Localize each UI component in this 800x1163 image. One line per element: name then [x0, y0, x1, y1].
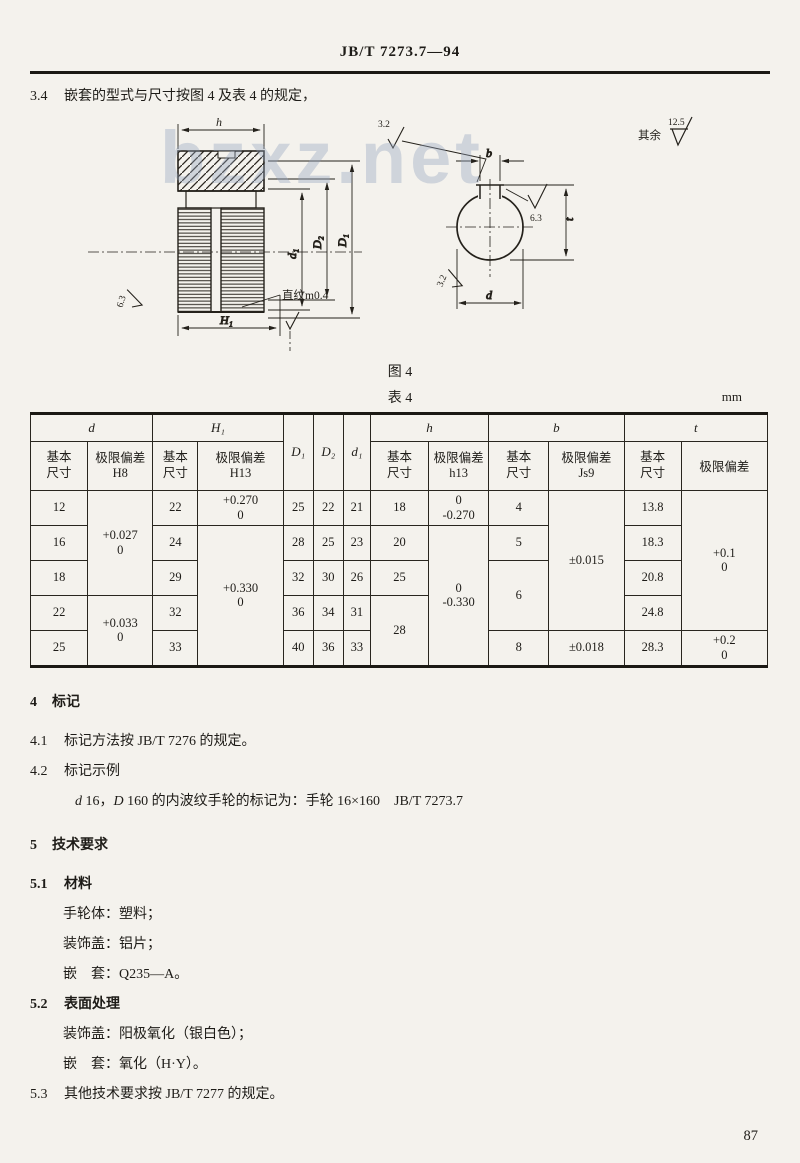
lower-deviation: 0	[103, 630, 138, 644]
roughness-left-value: 6.3	[116, 294, 129, 309]
lower-deviation: 0	[103, 543, 138, 557]
table-cell: 16	[31, 525, 88, 560]
knurl-note-text: 直纹m0.4	[282, 288, 329, 302]
table-cell: 25	[370, 560, 428, 595]
general-roughness-note: 其余 12.5	[638, 117, 692, 145]
left-view: h H₁ d₁	[88, 115, 486, 351]
table-caption-row: 表 4 mm	[30, 387, 770, 407]
table-subheader-row: 基本尺寸 极限偏差H8 基本尺寸 极限偏差H13 基本尺寸 极限偏差h13 基本…	[31, 441, 768, 490]
table-cell: 22	[153, 490, 198, 525]
table-4: d H₁ D₁ D₂ d₁ h b t 基本尺寸 极限偏差H8 基本尺寸 极限偏…	[30, 412, 768, 668]
table-cell: 4	[489, 490, 549, 525]
clause-5-1-heading: 5.1材料	[30, 876, 770, 895]
table-cell: 18	[370, 490, 428, 525]
insert-knurled-body	[178, 208, 264, 312]
table-header-cell: h	[370, 413, 488, 441]
surface-roughness-icon: 3.2	[436, 267, 466, 294]
section-title: 标记	[52, 695, 80, 710]
table-cell: 36	[283, 595, 313, 630]
table-cell: 34	[313, 595, 343, 630]
table-header-cell: 基本尺寸	[153, 441, 198, 490]
upper-deviation: 0	[442, 581, 474, 595]
table-header-cell: d	[31, 413, 153, 441]
table-cell: 28.3	[624, 630, 681, 666]
designation-example: d 16，D 160 的内波纹手轮的标记为：手轮 16×160 JB/T 727…	[30, 793, 770, 812]
other-surfaces-value: 12.5	[668, 118, 685, 128]
table-header-cell: D₁	[283, 413, 313, 490]
dim-D1-label: D₁	[335, 234, 349, 248]
upper-deviation: +0.330	[223, 581, 258, 595]
table-header-cell: 基本尺寸	[489, 441, 549, 490]
table-cell: ±0.015	[549, 490, 624, 630]
material-cover: 装饰盖：铝片；	[30, 936, 770, 955]
table-header-cell: 极限偏差H13	[198, 441, 283, 490]
upper-deviation: +0.1	[713, 546, 736, 560]
table-header-cell: D₂	[313, 413, 343, 490]
table-cell: 23	[343, 525, 370, 560]
table-cell: 21	[343, 490, 370, 525]
table-header-cell: 基本尺寸	[31, 441, 88, 490]
clause-number: 4.1	[30, 733, 64, 752]
table-cell: 22	[31, 595, 88, 630]
figure-caption: 图 4	[30, 361, 770, 381]
table-row: 12 +0.0270 22 +0.2700 25 22 21 18 0-0.27…	[31, 490, 768, 525]
clause-4-1: 4.1标记方法按 JB/T 7276 的规定。	[30, 733, 770, 752]
table-unit: mm	[722, 389, 742, 405]
table-cell: 13.8	[624, 490, 681, 525]
section-5-heading: 5技术要求	[30, 837, 770, 856]
roughness-top-value: 3.2	[378, 120, 390, 130]
section-4-heading: 4标记	[30, 694, 770, 713]
surface-roughness-icon: 3.2	[378, 120, 486, 182]
material-insert: 嵌 套：Q235—A。	[30, 966, 770, 985]
table-cell: 30	[313, 560, 343, 595]
table-cell: 24.8	[624, 595, 681, 630]
dim-d-label: d	[486, 288, 493, 302]
surface-cover: 装饰盖：阳极氧化（银白色）；	[30, 1026, 770, 1045]
lower-deviation: 0	[713, 560, 736, 574]
section-number: 4	[30, 694, 52, 713]
header-basic-size: 基本尺寸	[44, 450, 74, 481]
dimension-D2	[268, 179, 335, 300]
table-header-cell: 基本尺寸	[370, 441, 428, 490]
clause-number: 5.3	[30, 1086, 64, 1105]
header-basic-size: 基本尺寸	[160, 450, 190, 481]
table-header-cell: 极限偏差Js9	[549, 441, 624, 490]
lower-deviation: 0	[223, 508, 258, 522]
clause-number: 5.2	[30, 996, 64, 1015]
table-cell: 31	[343, 595, 370, 630]
right-view: b 6.3 t 3.	[436, 146, 576, 309]
scanned-standard-page: JB/T 7273.7—94 3.4嵌套的型式与尺寸按图 4 及表 4 的规定，…	[0, 0, 800, 1163]
table-cell: 32	[153, 595, 198, 630]
table-cell: 25	[31, 630, 88, 666]
clause-5-2-heading: 5.2表面处理	[30, 996, 770, 1015]
dim-d1-label: d₁	[285, 249, 299, 259]
table-cell: 12	[31, 490, 88, 525]
table-cell: ±0.018	[549, 630, 624, 666]
table-cell: 0-0.270	[429, 490, 489, 525]
dim-b-label: b	[486, 146, 492, 160]
other-surfaces-label: 其余	[638, 128, 661, 142]
lower-deviation: -0.270	[442, 508, 474, 522]
surface-roughness-icon: 6.3	[506, 184, 547, 224]
header-basic-size: 基本尺寸	[638, 450, 668, 481]
clause-text: 其他技术要求按 JB/T 7277 的规定。	[64, 1087, 283, 1102]
header-basic-size: 基本尺寸	[504, 450, 534, 481]
tolerance-class: h13	[430, 466, 487, 481]
header-deviation: 极限偏差	[430, 451, 487, 466]
table-cell: 5	[489, 525, 549, 560]
clause-text: 标记示例	[64, 764, 120, 779]
clause-3-4: 3.4嵌套的型式与尺寸按图 4 及表 4 的规定，	[30, 88, 770, 107]
upper-deviation: 0	[442, 493, 474, 507]
roughness-bore-value: 3.2	[436, 273, 450, 288]
table-cell: +0.10	[681, 490, 767, 630]
clause-5-3: 5.3其他技术要求按 JB/T 7277 的规定。	[30, 1086, 770, 1105]
table-cell: 33	[153, 630, 198, 666]
clause-text: 嵌套的型式与尺寸按图 4 及表 4 的规定，	[64, 89, 316, 104]
table-header-cell: 基本尺寸	[624, 441, 681, 490]
table-cell: 0-0.330	[429, 525, 489, 666]
header-basic-size: 基本尺寸	[384, 450, 414, 481]
standard-number-header: JB/T 7273.7—94	[30, 0, 770, 61]
table-cell: 22	[313, 490, 343, 525]
table-header-cell: 极限偏差H8	[88, 441, 153, 490]
table-header-cell: b	[489, 413, 624, 441]
table-cell: 24	[153, 525, 198, 560]
tolerance-class: H8	[89, 466, 151, 481]
lower-deviation: -0.330	[442, 595, 474, 609]
clause-number: 5.1	[30, 876, 64, 895]
dim-t-label: t	[562, 217, 576, 221]
table-cell: 40	[283, 630, 313, 666]
header-deviation: 极限偏差	[199, 451, 281, 466]
table-cell: 18	[31, 560, 88, 595]
table-cell: 28	[370, 595, 428, 666]
clause-number: 4.2	[30, 763, 64, 782]
insert-cap-section	[178, 151, 264, 208]
figure-4-drawing: bzxz.net	[30, 109, 770, 361]
table-cell: +0.3300	[198, 525, 283, 666]
clause-text: 标记方法按 JB/T 7276 的规定。	[64, 734, 255, 749]
section-number: 5	[30, 837, 52, 856]
dim-h-label: h	[216, 115, 222, 129]
table-group-header-row: d H₁ D₁ D₂ d₁ h b t	[31, 413, 768, 441]
table-cell: +0.20	[681, 630, 767, 666]
table-cell: +0.2700	[198, 490, 283, 525]
table-cell: 25	[283, 490, 313, 525]
table-cell: 33	[343, 630, 370, 666]
table-cell: 20.8	[624, 560, 681, 595]
table-row: 22 +0.0330 32 36 34 31 28 24.8	[31, 595, 768, 630]
table-cell: 28	[283, 525, 313, 560]
table-header-cell: d₁	[343, 413, 370, 490]
header-deviation: 极限偏差	[550, 451, 622, 466]
tolerance-class: H13	[199, 466, 281, 481]
material-handwheel: 手轮体：塑料；	[30, 906, 770, 925]
upper-deviation: +0.033	[103, 616, 138, 630]
table-cell: 20	[370, 525, 428, 560]
clause-title: 材料	[64, 877, 92, 892]
table-caption: 表 4	[388, 391, 413, 406]
table-header-cell: 极限偏差h13	[429, 441, 489, 490]
page-number: 87	[744, 1128, 759, 1145]
table-cell: +0.0330	[88, 595, 153, 666]
lower-deviation: 0	[223, 595, 258, 609]
table-cell: 25	[313, 525, 343, 560]
table-cell: 18.3	[624, 525, 681, 560]
header-deviation: 极限偏差	[89, 451, 151, 466]
table-cell: 36	[313, 630, 343, 666]
surface-insert: 嵌 套：氧化（H·Y）。	[30, 1056, 770, 1075]
surface-roughness-icon: 6.3	[116, 288, 146, 314]
roughness-keyway-value: 6.3	[530, 214, 542, 224]
clause-number: 3.4	[30, 88, 64, 107]
table-cell: 26	[343, 560, 370, 595]
table-header-cell: 极限偏差	[681, 441, 767, 490]
table-cell: 6	[489, 560, 549, 630]
table-cell: +0.0270	[88, 490, 153, 595]
upper-deviation: +0.027	[103, 528, 138, 542]
upper-deviation: +0.270	[223, 493, 258, 507]
upper-deviation: +0.2	[713, 633, 736, 647]
section-title: 技术要求	[52, 838, 108, 853]
value-d: 16，	[82, 794, 114, 809]
clause-title: 表面处理	[64, 997, 120, 1012]
page-content: JB/T 7273.7—94 3.4嵌套的型式与尺寸按图 4 及表 4 的规定，…	[0, 0, 800, 1104]
example-text: 160 的内波纹手轮的标记为：手轮 16×160 JB/T 7273.7	[124, 794, 463, 809]
table-header-cell: H₁	[153, 413, 283, 441]
table-cell: 8	[489, 630, 549, 666]
table-cell: 29	[153, 560, 198, 595]
clause-4-2: 4.2标记示例	[30, 763, 770, 782]
dim-H1-label: H₁	[219, 313, 233, 327]
technical-drawing-svg: h H₁ d₁	[30, 109, 770, 361]
dim-D2-label: D₂	[310, 236, 324, 250]
tolerance-class: Js9	[550, 466, 622, 481]
table-cell: 32	[283, 560, 313, 595]
lower-deviation: 0	[713, 648, 736, 662]
symbol-D: D	[114, 794, 124, 809]
symbol-d: d	[75, 794, 82, 809]
header-rule	[30, 71, 770, 74]
table-header-cell: t	[624, 413, 767, 441]
